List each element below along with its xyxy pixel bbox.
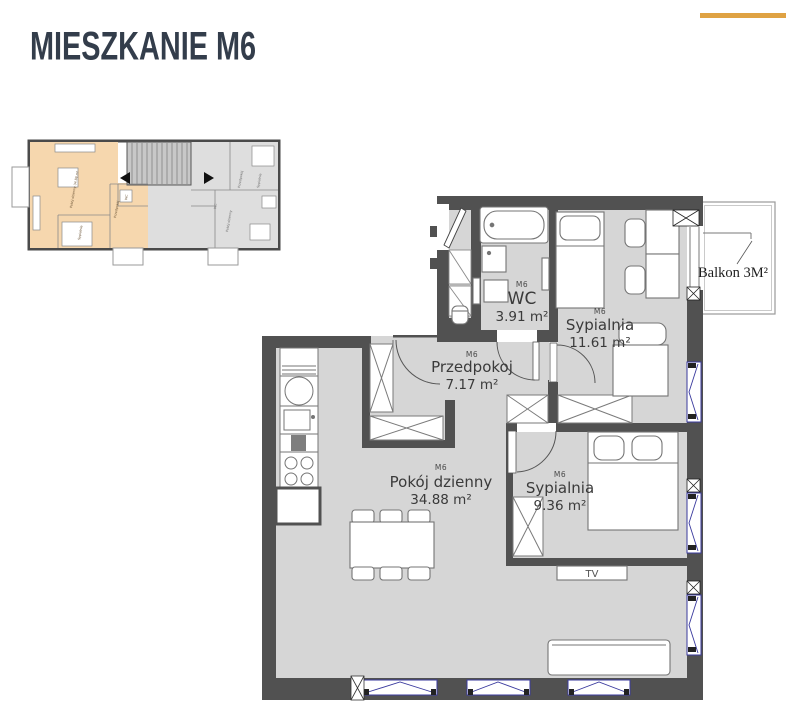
- unit-tag: M6: [594, 307, 606, 316]
- room-area: 34.88 m²: [410, 492, 472, 508]
- room-area: 11.61 m²: [569, 335, 631, 351]
- unit-tag: M6: [554, 470, 566, 479]
- bedroom1-wardrobe: [558, 395, 632, 423]
- window: [687, 493, 701, 553]
- main-floorplan: TV: [262, 196, 775, 700]
- double-bed: [588, 432, 678, 530]
- dining-set: [350, 510, 434, 580]
- window: [568, 680, 630, 695]
- room-area: 9.36 m²: [534, 498, 587, 514]
- single-bed: [556, 212, 604, 308]
- window: [687, 362, 701, 422]
- radiator2: [542, 258, 549, 290]
- kitchen-cabinet: [280, 348, 318, 376]
- balcony-label: Balkon 3M²: [698, 265, 769, 281]
- wall-niche: [276, 488, 320, 524]
- window: [363, 680, 437, 695]
- stove: [280, 452, 318, 490]
- room-area: 7.17 m²: [446, 377, 499, 393]
- bathtub: [480, 207, 548, 243]
- room-name: WC: [508, 289, 537, 309]
- overview-porch-left: [113, 248, 143, 265]
- floorplan-canvas: Pokój dzienny 34.88 m² Sypialnia Przedpo…: [0, 0, 786, 717]
- unit-tag: M6: [516, 280, 528, 289]
- kitchen-sink: [280, 406, 318, 434]
- hall-wardrobe: [507, 395, 548, 423]
- radiator: [473, 278, 480, 304]
- window: [467, 680, 530, 695]
- floorplan-page: { "header": { "title": "MIESZKANIE M6" }…: [0, 0, 786, 717]
- overview-porch-right: [208, 248, 238, 265]
- desk: [646, 254, 679, 298]
- overview-staircase: [127, 142, 191, 185]
- overview-balcony: [12, 167, 29, 207]
- balcony: [701, 202, 775, 314]
- kitchen: [280, 348, 318, 490]
- kitchen-sink-round: [280, 376, 318, 406]
- wall-pillar-hatch: [351, 676, 364, 700]
- room-name: Sypialnia: [526, 479, 594, 497]
- washing-machine: [484, 280, 508, 302]
- closet-wardrobe-wide: [370, 416, 443, 440]
- toilet: [452, 306, 468, 324]
- window: [687, 595, 701, 655]
- room-name: Sypialnia: [566, 316, 634, 334]
- dining-table: [350, 522, 434, 568]
- chair: [625, 219, 645, 247]
- overview-floorplan: Pokój dzienny 34.88 m² Sypialnia Przedpo…: [12, 141, 279, 265]
- room-area: 3.91 m²: [496, 309, 549, 325]
- room-name: Pokój dzienny: [390, 473, 493, 491]
- sofa: [548, 640, 670, 675]
- chair: [625, 266, 645, 294]
- tv-label: TV: [585, 569, 599, 580]
- unit-tag: M6: [435, 463, 447, 472]
- closet-wardrobe-tall: [370, 344, 393, 412]
- sink: [482, 246, 506, 272]
- room-name: Przedpokoj: [431, 358, 513, 376]
- kitchen-appliance: [280, 434, 318, 452]
